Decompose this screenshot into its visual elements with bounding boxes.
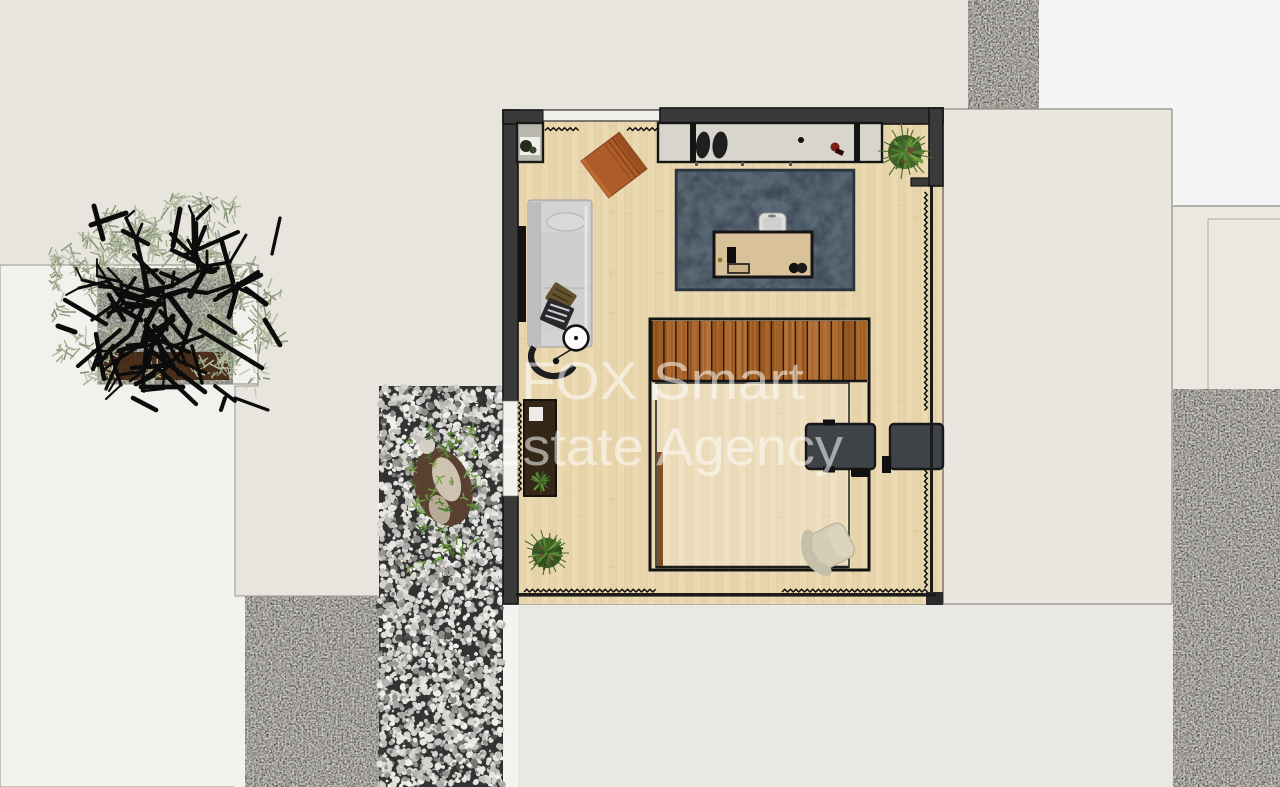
svg-text:Estate Agency: Estate Agency <box>485 418 844 477</box>
svg-text:FOX Smart: FOX Smart <box>521 352 804 411</box>
